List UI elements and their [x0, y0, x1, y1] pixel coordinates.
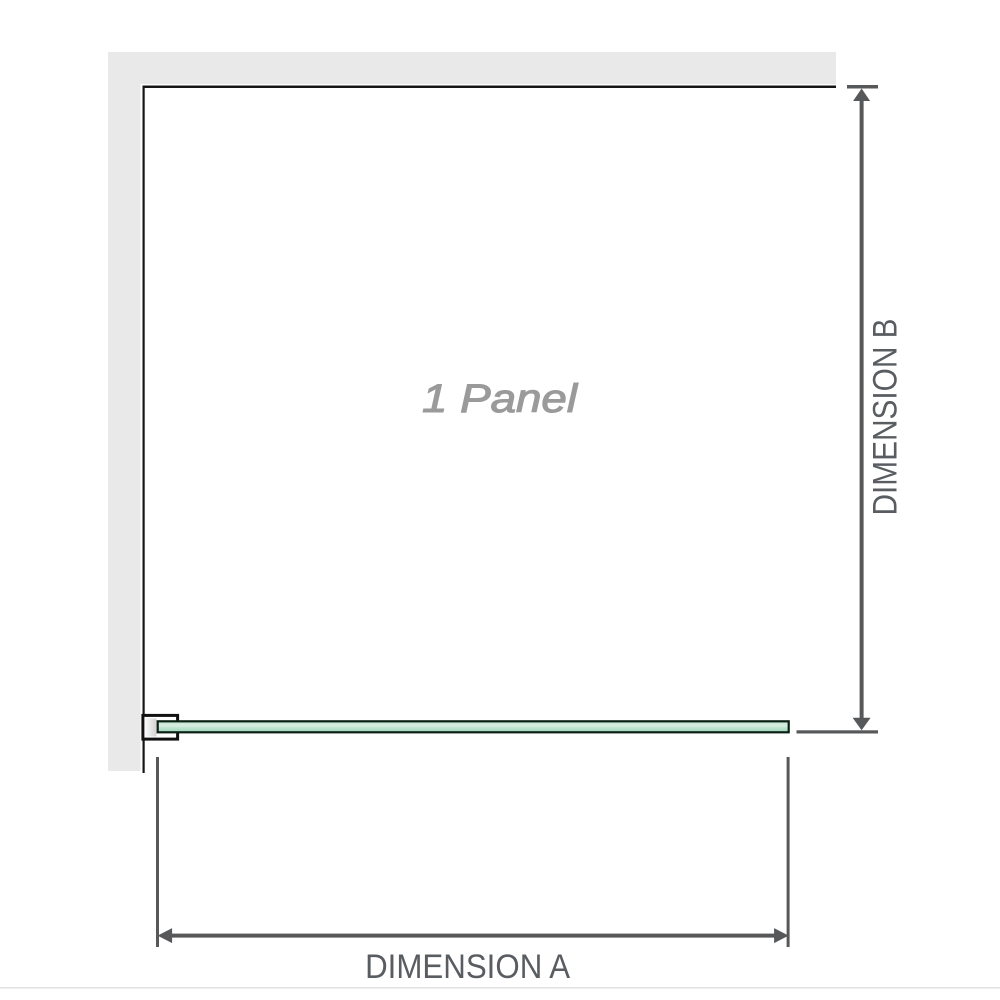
svg-text:DIMENSION B: DIMENSION B: [866, 319, 904, 516]
svg-text:1 Panel: 1 Panel: [422, 377, 578, 421]
svg-text:DIMENSION A: DIMENSION A: [365, 948, 570, 986]
